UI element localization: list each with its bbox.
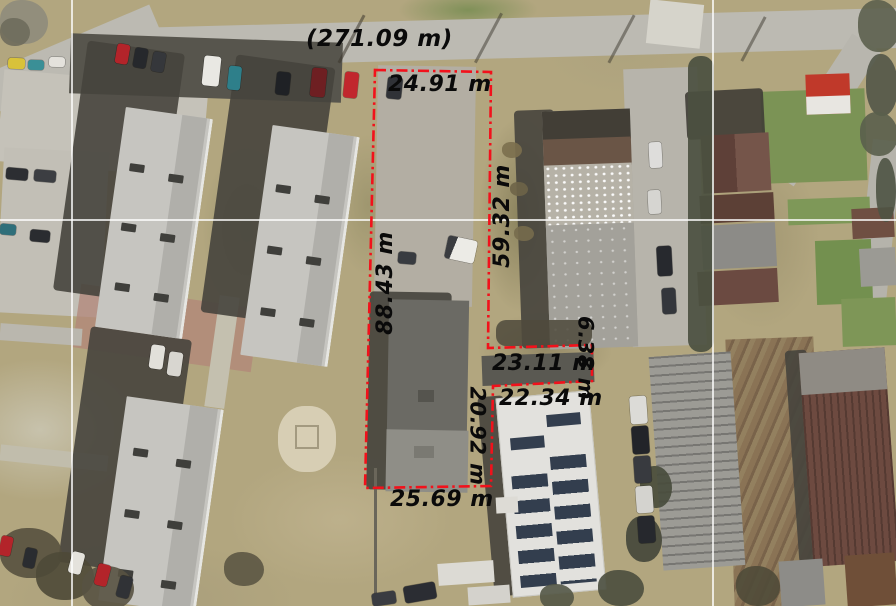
aerial-photo: (271.09 m) 24.91 m 59.32 m 88.43 m 23.11… — [0, 0, 896, 606]
measurement-label-notch-south: 22.34 m — [499, 388, 603, 410]
measurement-label-north-edge: 24.91 m — [388, 74, 492, 96]
measurement-label-west-edge: 88.43 m — [375, 231, 397, 335]
measurement-label-east-lower: 20.92 m — [467, 386, 488, 485]
measurement-label-road-frontage: (271.09 m) — [306, 28, 453, 51]
measurement-label-south-edge: 25.69 m — [390, 489, 494, 511]
measurement-label-east-upper: 59.32 m — [492, 164, 514, 268]
